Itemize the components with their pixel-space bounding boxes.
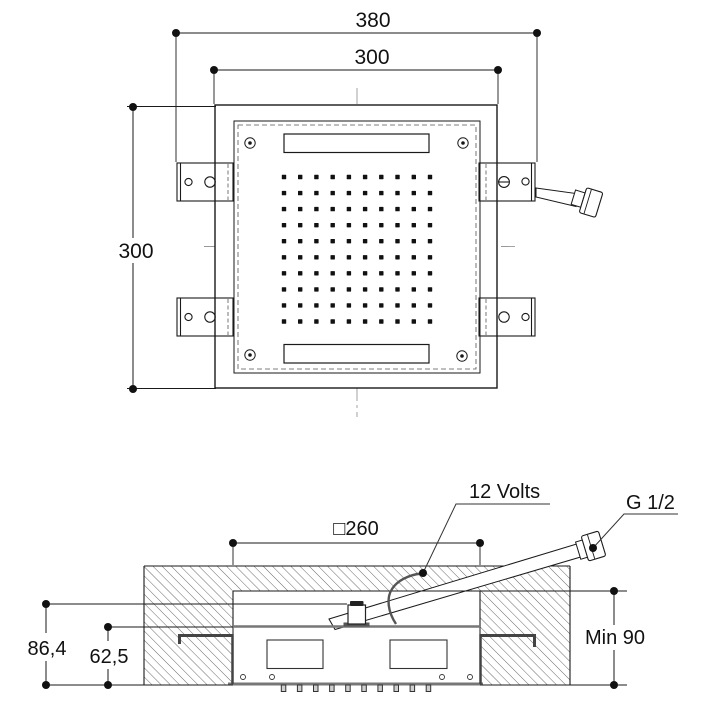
top-view: 380 300 300 — [118, 9, 602, 417]
dim-height-body-label: 62,5 — [90, 646, 129, 668]
power-label: 12 Volts — [469, 481, 540, 503]
hose-connector-top-view — [536, 185, 603, 218]
dim-plate-height-label: 300 — [118, 240, 153, 263]
shower-head-technical-drawing: 380 300 300 — [0, 0, 707, 718]
dim-min-recess-label: Min 90 — [585, 627, 645, 649]
dim-height-overall-label: 86,4 — [28, 638, 67, 660]
bottom-waterfall-slot — [284, 345, 429, 364]
mounting-hooks — [180, 634, 535, 684]
section-view: □260 12 Volts G 1/2 86,4 62, — [28, 481, 678, 692]
dimension-min-recess: Min 90 — [585, 587, 645, 689]
dim-cutout-label: □260 — [333, 518, 378, 540]
connection-label: G 1/2 — [626, 492, 675, 514]
dim-plate-width-label: 300 — [354, 46, 389, 69]
top-waterfall-slot — [284, 134, 429, 153]
dim-overall-width-label: 380 — [355, 9, 390, 32]
flange-screw-holes — [241, 675, 473, 680]
internal-module-right — [390, 640, 447, 669]
technical-drawing-page: 380 300 300 — [0, 0, 707, 718]
internal-module-left — [267, 640, 323, 669]
dimension-plate-width: 300 — [210, 46, 502, 104]
dimension-plate-height: 300 — [118, 103, 216, 393]
nozzle-strip — [281, 685, 430, 692]
